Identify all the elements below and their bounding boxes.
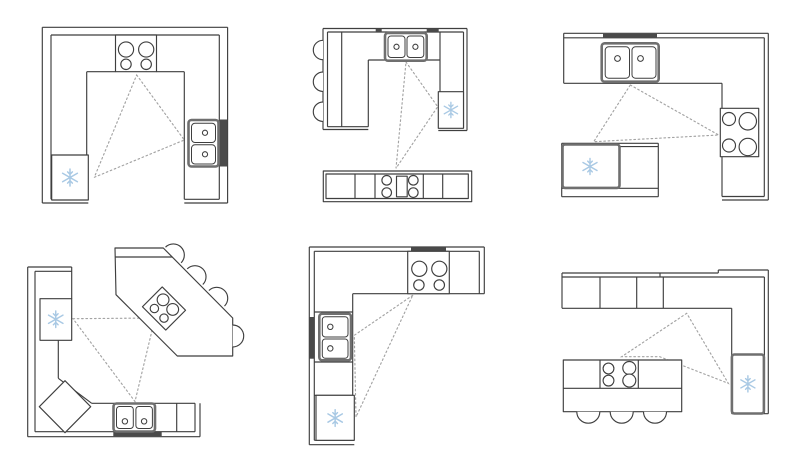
sink-icon [113, 404, 161, 437]
refrigerator-icon [40, 299, 72, 341]
stove-icon [720, 108, 758, 156]
sink-icon [376, 29, 439, 61]
stove-icon [408, 247, 450, 294]
diagram-l-shape-breakfast-island [532, 232, 800, 464]
island-counter [562, 143, 659, 196]
kitchen-layouts-figure [0, 0, 800, 464]
work-triangle [594, 85, 719, 142]
island-counter [563, 360, 681, 412]
bar-stools [577, 412, 667, 424]
sink-icon [602, 34, 659, 82]
diagram-u-shape-with-island [266, 0, 532, 232]
work-triangle [94, 75, 184, 177]
corner-cabinet-diamond [39, 381, 90, 433]
diagram-l-shape-with-island [532, 0, 800, 232]
refrigerator-icon [316, 395, 354, 440]
counter-edges [87, 72, 185, 200]
sink-icon [189, 120, 228, 167]
diagram-l-shape-kitchen [266, 232, 532, 464]
refrigerator-icon [438, 92, 463, 129]
diagram-corner-kitchen-angled-bar [0, 232, 266, 464]
bar-stools [313, 40, 323, 121]
work-triangle [354, 295, 412, 417]
refrigerator-icon [563, 145, 620, 188]
work-triangle [73, 318, 155, 402]
angled-island [115, 248, 233, 356]
diagram-u-shape-kitchen [0, 0, 266, 232]
refrigerator-icon [732, 355, 764, 414]
stove-icon [116, 35, 157, 72]
island-counter [323, 171, 471, 202]
refrigerator-icon [52, 155, 89, 200]
work-triangle [396, 62, 438, 168]
sink-icon [310, 314, 352, 361]
